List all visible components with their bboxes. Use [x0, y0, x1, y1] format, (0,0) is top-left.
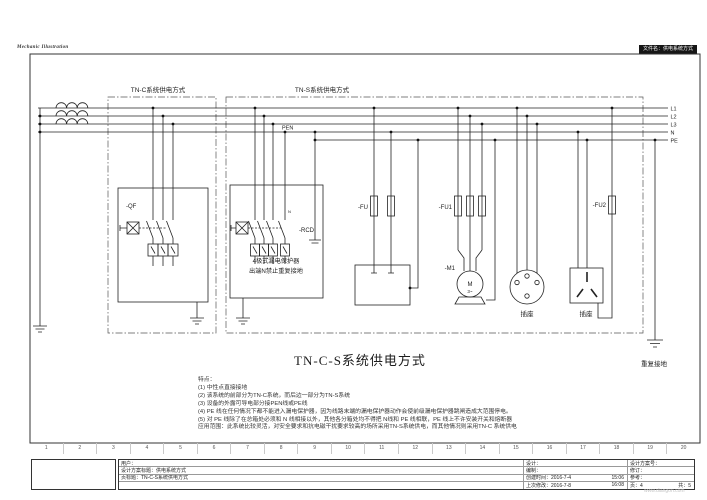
titleblock-scheme-no: 设计方案号：: [628, 460, 694, 467]
titleblock-project-title: 设计方案标题：供电系统方式: [119, 467, 524, 474]
circuit-lines: [33, 103, 668, 347]
titleblock-empty: [119, 482, 524, 489]
fu1-label: -FU1: [439, 205, 453, 211]
ruler-number: 8: [265, 443, 299, 454]
titleblock-page-title: 页标题：TN-C-S系统供电方式: [119, 475, 524, 482]
rcd-breaker: [230, 108, 323, 324]
ruler-number: 11: [365, 443, 399, 454]
notes-block: 特点：(1) 中性点直接接地(2) 该系统的前部分为TN-C系统，而后边一部分为…: [198, 377, 528, 432]
titleblock-modified: 上次修改：2016-7-8 16:08: [524, 482, 628, 489]
source-earth-icon: [33, 108, 47, 332]
pen-split-earth-icon: [309, 132, 321, 243]
ruler-number: 14: [466, 443, 500, 454]
diagram-title: TN-C-S系统供电方式: [260, 350, 460, 369]
bus-label-l1: L1: [671, 107, 677, 113]
ruler-number: 3: [97, 443, 131, 454]
fu1-fuse-motor: [455, 108, 496, 304]
pen-label: PEN: [282, 126, 293, 132]
bus-lines: [38, 108, 668, 140]
note-line: 应用范围：此系统比较灵活，对安全要求和抗电磁干扰要求较高的场所采用TN-S系统供…: [198, 424, 528, 432]
column-ruler: 1234567891011121314151617181920: [30, 443, 700, 454]
transformer-coil-icon: [56, 103, 88, 124]
bus-label-l3: L3: [671, 123, 677, 129]
fu2-label: -FU2: [593, 203, 607, 209]
socket1-label: 插座: [521, 309, 535, 318]
titleblock-modified-label: 上次修改：2016-7-8: [526, 482, 571, 489]
ruler-number: 9: [298, 443, 332, 454]
titleblock-created-label: 创建时间：2016-7-4: [526, 475, 571, 482]
motor-phase-mark: 3~: [467, 289, 473, 294]
socket-round-icon: [510, 108, 544, 304]
ruler-number: 16: [533, 443, 567, 454]
bus-label-l2: L2: [671, 115, 677, 121]
titleblock-logo-box: [31, 459, 116, 490]
rcd-note-line1: 4极式漏电保护器: [253, 257, 301, 265]
m1-label: -M1: [445, 266, 456, 272]
note-line: (1) 中性点直接接地: [198, 385, 528, 393]
titleblock-reference: 参考：: [628, 475, 694, 482]
fu-label: -FU: [358, 205, 368, 211]
titleblock-modified-time: 16:08: [611, 482, 624, 488]
rcd-label: -RCD: [299, 228, 315, 234]
motor-m-mark: M: [468, 282, 473, 288]
ruler-number: 18: [600, 443, 634, 454]
ruler-number: 10: [332, 443, 366, 454]
titleblock-compile: 编制：: [524, 467, 628, 474]
ruler-number: 2: [64, 443, 98, 454]
rcd-n-mark: N: [288, 209, 291, 214]
titleblock-created-time: 15:06: [611, 475, 624, 481]
ruler-number: 12: [399, 443, 433, 454]
schematic-labels: TN-C系统供电方式 TN-S系统供电方式 PEN L1 L2 L3 N PE …: [126, 85, 678, 368]
fu2-fuse-socket: [570, 108, 616, 318]
titleblock-page: 页：4: [630, 482, 643, 489]
titleblock-customer: 用户：: [119, 460, 524, 467]
drawing-page: Mechanic Illustration 文件名：供电系统方式: [0, 0, 707, 500]
titleblock: 用户： 设计： 设计方案号： 设计方案标题：供电系统方式 编制： 修订： 页标题…: [118, 459, 695, 490]
ruler-number: 13: [433, 443, 467, 454]
titleblock-created: 创建时间：2016-7-4 15:06: [524, 475, 628, 482]
bus-label-n: N: [671, 131, 675, 137]
note-line: (2) 该系统的前部分为TN-C系统，而后边一部分为TN-S系统: [198, 393, 528, 401]
note-line: 特点：: [198, 377, 528, 385]
watermark: www.diangon.com: [644, 488, 685, 494]
ruler-number: 17: [567, 443, 601, 454]
junction-dots: [39, 107, 657, 290]
bus-label-pe: PE: [671, 139, 679, 145]
socket2-label: 插座: [580, 309, 594, 318]
ruler-number: 19: [634, 443, 668, 454]
ruler-number: 1: [30, 443, 64, 454]
note-line: (3) 设备的外露可导电部分接PEN线或PE线: [198, 401, 528, 409]
note-line: (4) PE 线在任何情况下都不能进入漏电保护器，因为线路末端的漏电保护器动作会…: [198, 409, 528, 417]
rcd-note-line2: 出端N禁止重复接地: [249, 267, 303, 275]
qf-breaker: [118, 108, 208, 324]
tnc-section-label: TN-C系统供电方式: [131, 85, 186, 94]
titleblock-design: 设计：: [524, 460, 628, 467]
tns-section-label: TN-S系统供电方式: [295, 85, 350, 94]
ruler-number: 15: [500, 443, 534, 454]
titleblock-revision: 修订：: [628, 467, 694, 474]
ruler-number: 20: [667, 443, 700, 454]
qf-label: -QF: [126, 204, 137, 210]
ruler-number: 4: [131, 443, 165, 454]
repeat-ground-label: 重复接地: [641, 359, 668, 368]
ruler-number: 5: [164, 443, 198, 454]
ruler-number: 7: [231, 443, 265, 454]
ruler-number: 6: [198, 443, 232, 454]
repeat-earth-icon: [647, 140, 663, 347]
